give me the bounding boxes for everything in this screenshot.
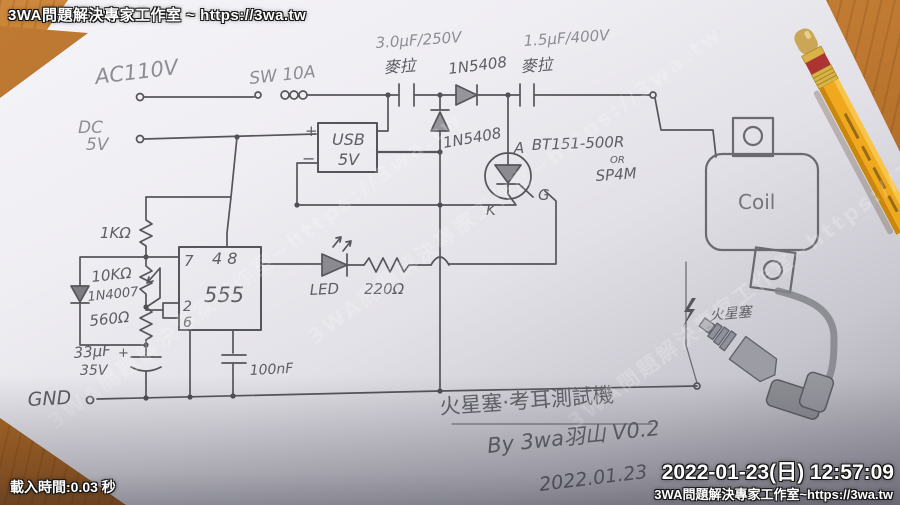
watermark-bottom-right: 3WA問題解決專家工作室~https://3wa.tw [654,484,893,503]
load-time-overlay: 載入時間:0.03 秒 [10,477,116,497]
label-c1-type: 麥拉 [383,56,418,77]
label-c2-type: 麥拉 [520,55,555,76]
label-coil: Coil [738,190,775,214]
label-usb: USB [332,130,365,149]
capacitor-c4 [222,355,246,396]
label-dc-5v: 5V [86,135,110,155]
wire-5v-branch [146,137,237,247]
label-pin4-8: 4 8 [212,249,237,268]
label-usb-5v: 5V [338,150,360,169]
label-sw-10a: SW 10A [248,62,316,89]
label-usb-plus: + [305,122,318,140]
junction-dot [230,393,235,398]
timestamp-overlay: 2022-01-23(日) 12:57:09 [662,456,894,486]
junction-dot [143,304,148,309]
label-r3: 560Ω [89,308,131,330]
switch-sw [255,91,399,99]
label-led: LED [309,279,339,299]
wire-coil-feed [655,98,716,157]
label-c3: 33μF [73,341,112,362]
label-ac110v: AC110V [92,55,181,89]
potentiometer-r2 [140,257,160,307]
label-c4: 100nF [249,361,294,379]
photo-of-circuit-sketch: AC110V SW 10A 3.0μF/250V 麥拉 1N5408 1.5μF… [0,0,900,505]
junction-dot [187,394,192,399]
label-pin7: 7 [184,252,194,270]
resistor-r1 [140,197,152,257]
label-c2-value: 1.5μF/400V [523,26,612,50]
plug-boot [765,371,835,421]
label-r2: 10KΩ [91,264,134,286]
label-usb-minus: − [302,149,315,168]
junction-dot [437,388,442,393]
label-scr-alt: SP4M [595,164,637,185]
junction-dot [143,395,148,400]
label-scr-g: G [538,186,550,204]
junction-dot [294,202,299,207]
label-c1-value: 3.0μF/250V [375,28,464,52]
junction-dot [437,202,442,207]
label-d1: 1N5408 [447,53,508,78]
label-scr-a: A [513,139,524,157]
ac-input-terminal [137,94,255,101]
label-r1: 1KΩ [100,224,131,242]
circuit-schematic: AC110V SW 10A 3.0μF/250V 麥拉 1N5408 1.5μF… [0,0,900,505]
watermark-top-left: 3WA問題解決專家工作室 ~ https://3wa.tw [8,4,306,25]
capacitor-c1-mylar [399,84,456,106]
dc-input-terminal [137,134,317,143]
label-d3: 1N4007 [87,285,140,305]
sketch-date: 2022.01.23 [538,461,649,496]
